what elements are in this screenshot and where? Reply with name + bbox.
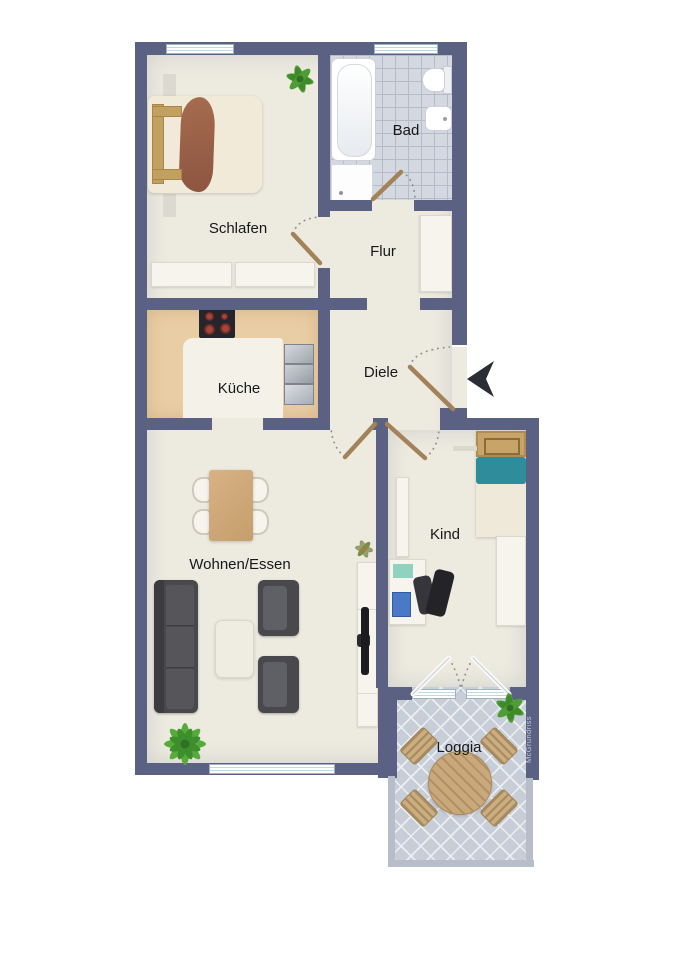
door-leaf [373, 172, 401, 199]
room-label-schlafen: Schlafen [178, 220, 298, 238]
room-label-diele: Diele [341, 364, 421, 382]
plant-icon [285, 64, 314, 93]
plant-icon [355, 539, 374, 558]
door-swing-arc [425, 429, 439, 458]
room-label-flur: Flur [343, 243, 423, 261]
door-leaf [293, 234, 320, 263]
loggia-door-leaf-edge [473, 658, 509, 694]
watermark: McGrundriss [524, 698, 539, 782]
entrance-arrow-icon [467, 361, 494, 397]
door-swing-arc [461, 658, 473, 691]
room-label-loggia: Loggia [409, 739, 509, 757]
door-swing-arc [331, 427, 345, 457]
door-swing-arc [449, 658, 461, 691]
room-label-kind: Kind [405, 526, 485, 544]
plan-overlay [0, 0, 678, 960]
room-label-kueche: Küche [179, 380, 299, 398]
door-swing-arc [401, 172, 415, 199]
loggia-door-leaf-edge [413, 658, 449, 694]
door-leaf [387, 424, 425, 458]
plant-icon [164, 723, 206, 765]
plant-icon [495, 693, 526, 724]
door-leaf [345, 424, 375, 457]
room-label-wohnen-essen: Wohnen/Essen [160, 556, 320, 574]
floor-plan: Schlafen Bad Flur Küche Diele Wohnen/Ess… [0, 0, 678, 960]
room-label-bad: Bad [376, 122, 436, 140]
